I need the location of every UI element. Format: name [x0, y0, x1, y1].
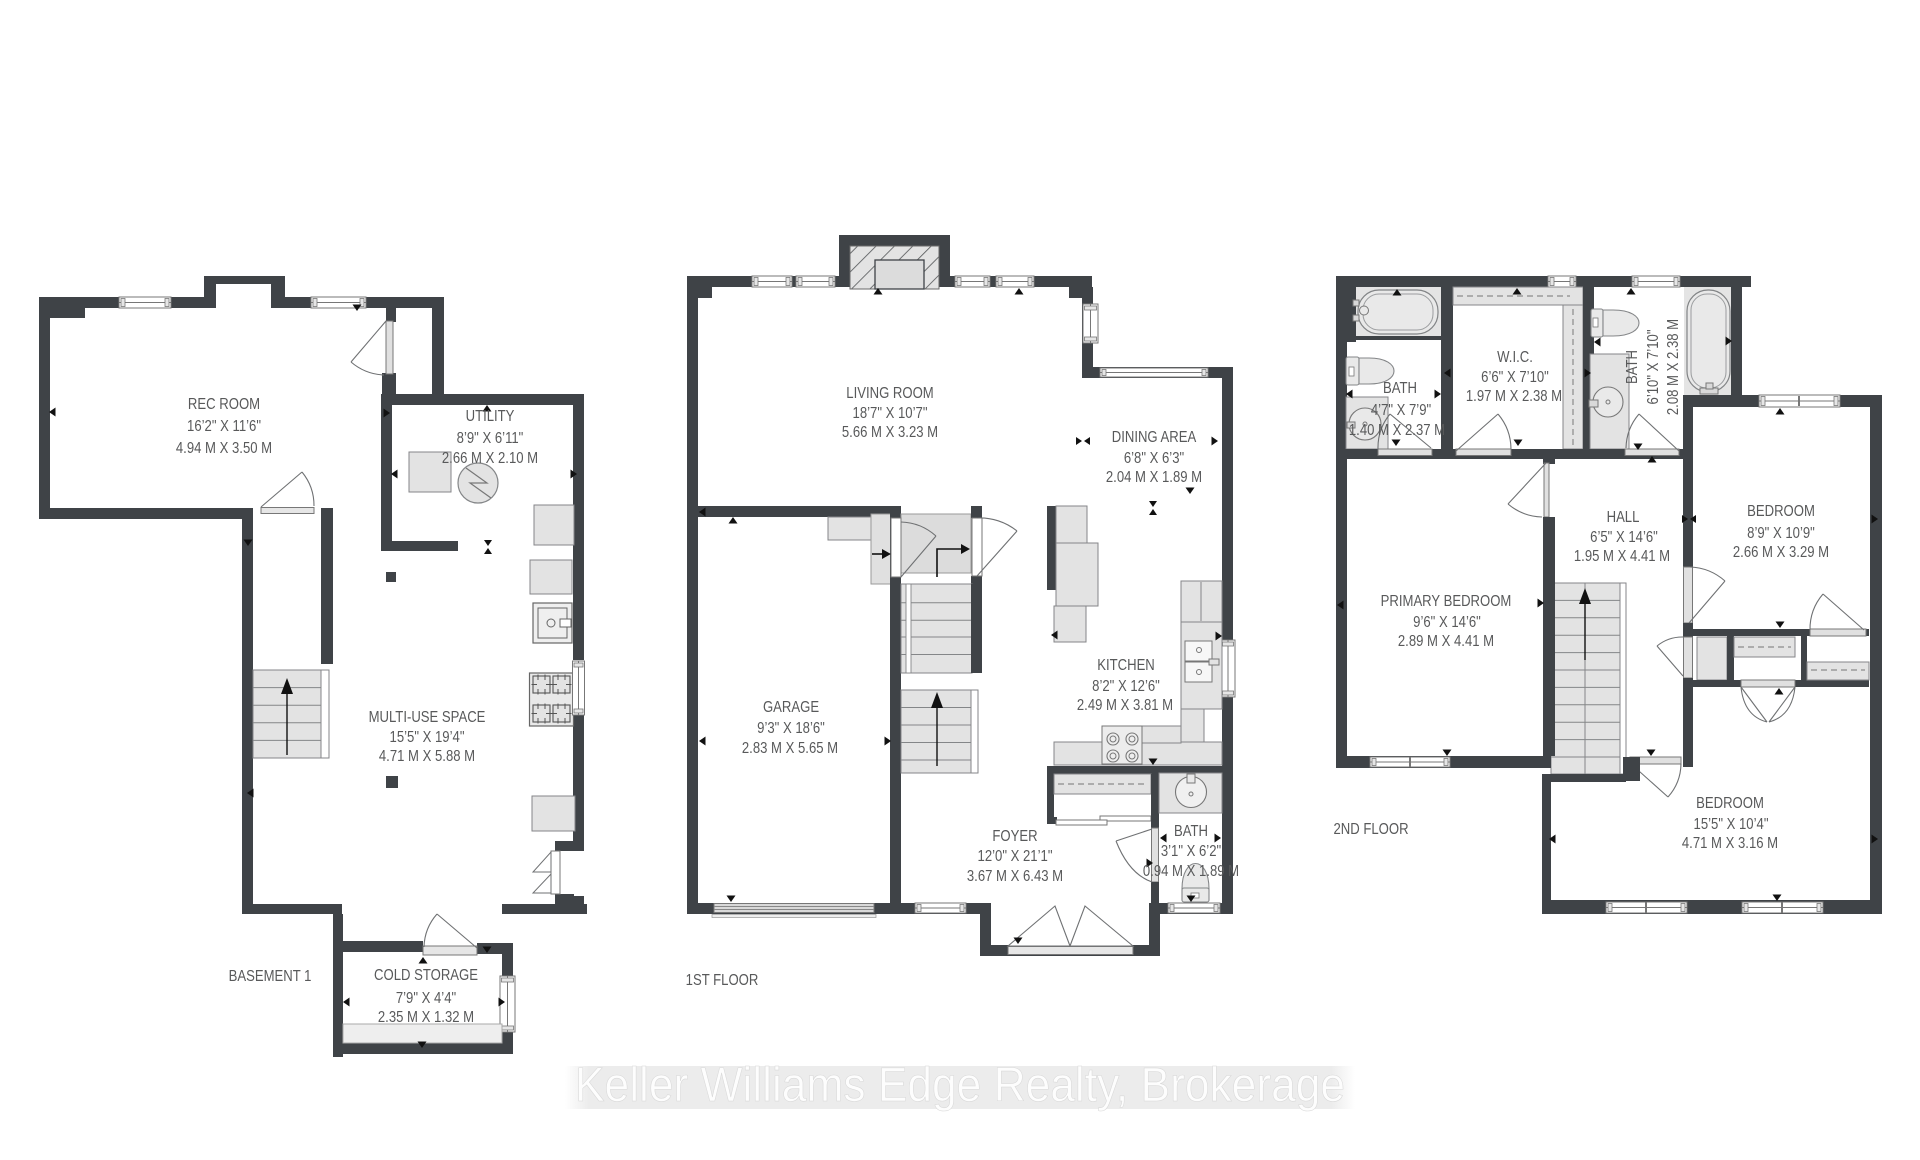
svg-text:DINING AREA: DINING AREA — [1112, 429, 1197, 446]
svg-text:2.49 M X 3.81 M: 2.49 M X 3.81 M — [1077, 697, 1173, 714]
svg-text:BATH: BATH — [1174, 823, 1208, 840]
svg-text:REC ROOM: REC ROOM — [188, 396, 260, 413]
svg-text:BATH: BATH — [1624, 350, 1641, 384]
svg-text:1.40 M X 2.37 M: 1.40 M X 2.37 M — [1349, 422, 1445, 439]
svg-text:HALL: HALL — [1607, 509, 1640, 526]
svg-text:UTILITY: UTILITY — [466, 408, 515, 425]
svg-text:2.04 M X 1.89 M: 2.04 M X 1.89 M — [1106, 469, 1202, 486]
svg-text:4.71 M X 5.88 M: 4.71 M X 5.88 M — [379, 748, 475, 765]
svg-text:KITCHEN: KITCHEN — [1097, 657, 1155, 674]
svg-text:6’10" X 7’10": 6’10" X 7’10" — [1645, 330, 1662, 405]
svg-text:2.08 M X 2.38 M: 2.08 M X 2.38 M — [1665, 319, 1682, 415]
svg-text:LIVING ROOM: LIVING ROOM — [846, 385, 933, 402]
svg-text:2.66 M X 3.29 M: 2.66 M X 3.29 M — [1733, 544, 1829, 561]
svg-text:BATH: BATH — [1383, 380, 1417, 397]
svg-text:W.I.C.: W.I.C. — [1497, 349, 1533, 366]
svg-text:16’2" X 11’6": 16’2" X 11’6" — [187, 418, 261, 435]
svg-text:2.66 M X 2.10 M: 2.66 M X 2.10 M — [442, 450, 538, 467]
svg-text:8’9" X 10’9": 8’9" X 10’9" — [1747, 525, 1815, 542]
svg-text:1ST FLOOR: 1ST FLOOR — [686, 972, 759, 989]
svg-text:Keller Williams Edge Realty, B: Keller Williams Edge Realty, Brokerage — [575, 1059, 1345, 1112]
svg-text:18’7" X 10’7": 18’7" X 10’7" — [853, 405, 928, 422]
svg-text:15’5" X 10’4": 15’5" X 10’4" — [1694, 816, 1769, 833]
svg-text:4.71 M X 3.16 M: 4.71 M X 3.16 M — [1682, 835, 1778, 852]
svg-text:2ND FLOOR: 2ND FLOOR — [1333, 821, 1408, 838]
svg-text:PRIMARY BEDROOM: PRIMARY BEDROOM — [1381, 593, 1512, 610]
svg-text:BEDROOM: BEDROOM — [1696, 795, 1764, 812]
svg-text:12’0" X 21’1": 12’0" X 21’1" — [978, 848, 1053, 865]
svg-text:6’6" X 7’10": 6’6" X 7’10" — [1481, 369, 1549, 386]
svg-text:7’9" X 4’4": 7’9" X 4’4" — [396, 990, 456, 1007]
svg-text:15’5" X 19’4": 15’5" X 19’4" — [390, 729, 465, 746]
svg-text:3’1" X 6’2": 3’1" X 6’2" — [1161, 843, 1221, 860]
svg-text:1.95 M X 4.41 M: 1.95 M X 4.41 M — [1574, 548, 1670, 565]
svg-text:2.83 M X 5.65 M: 2.83 M X 5.65 M — [742, 740, 838, 757]
svg-text:6’8" X 6’3": 6’8" X 6’3" — [1124, 450, 1184, 467]
svg-text:9’6" X 14’6": 9’6" X 14’6" — [1413, 614, 1481, 631]
svg-text:MULTI-USE SPACE: MULTI-USE SPACE — [369, 709, 486, 726]
svg-text:8’2" X 12’6": 8’2" X 12’6" — [1092, 678, 1160, 695]
svg-text:BEDROOM: BEDROOM — [1747, 503, 1815, 520]
svg-text:GARAGE: GARAGE — [763, 699, 819, 716]
svg-text:4’7" X 7’9": 4’7" X 7’9" — [1371, 402, 1431, 419]
svg-text:6’5" X 14’6": 6’5" X 14’6" — [1590, 529, 1658, 546]
svg-text:5.66 M X 3.23 M: 5.66 M X 3.23 M — [842, 424, 938, 441]
svg-text:BASEMENT 1: BASEMENT 1 — [229, 968, 312, 985]
svg-text:COLD STORAGE: COLD STORAGE — [374, 967, 478, 984]
svg-text:0.94 M X 1.89 M: 0.94 M X 1.89 M — [1143, 863, 1239, 880]
svg-text:9’3" X 18’6": 9’3" X 18’6" — [757, 720, 825, 737]
svg-text:1.97 M X 2.38 M: 1.97 M X 2.38 M — [1466, 388, 1562, 405]
svg-text:2.89 M X 4.41 M: 2.89 M X 4.41 M — [1398, 633, 1494, 650]
svg-text:2.35 M X 1.32 M: 2.35 M X 1.32 M — [378, 1009, 474, 1026]
svg-text:8’9" X 6’11": 8’9" X 6’11" — [457, 430, 524, 447]
svg-text:FOYER: FOYER — [992, 828, 1037, 845]
svg-text:3.67 M X 6.43 M: 3.67 M X 6.43 M — [967, 868, 1063, 885]
svg-text:4.94 M X 3.50 M: 4.94 M X 3.50 M — [176, 440, 272, 457]
